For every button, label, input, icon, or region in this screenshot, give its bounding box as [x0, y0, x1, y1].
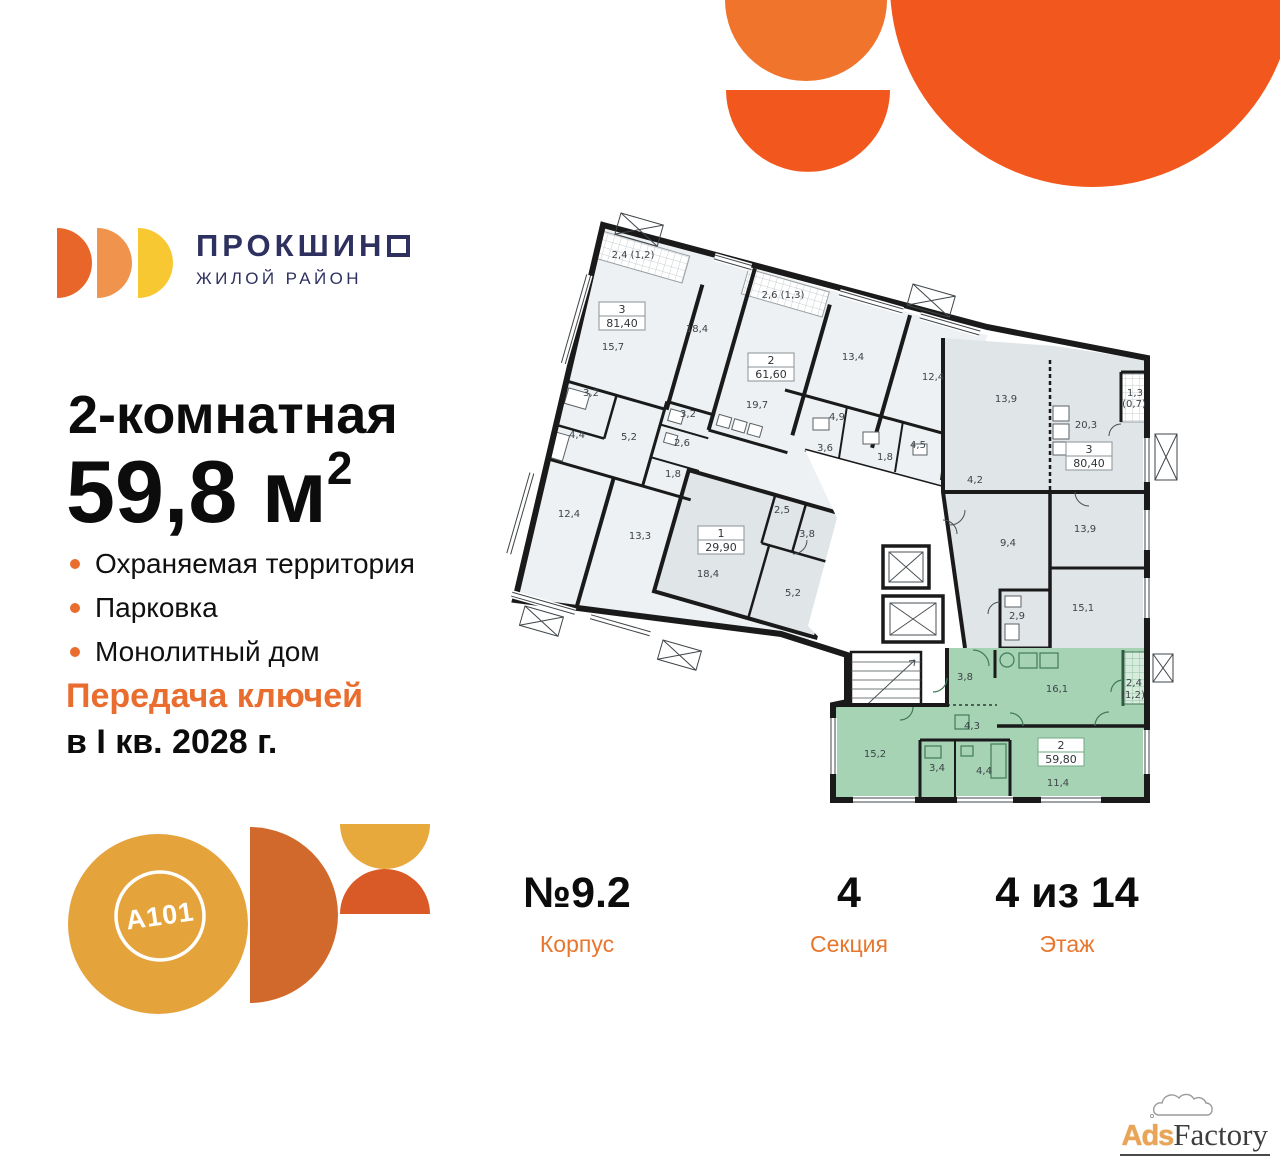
decor-circle-large: [890, 0, 1280, 187]
room-area-label: 15,2: [864, 749, 886, 760]
apartment-total-area: 81,40: [606, 317, 638, 330]
room-area-label: 3,6: [817, 443, 833, 454]
apartment-box: 261,60: [748, 353, 794, 381]
room-area-label: 13,9: [1074, 524, 1096, 535]
apartment-total-area: 59,80: [1045, 753, 1077, 766]
handover-line2: в I кв. 2028 г.: [66, 720, 363, 766]
room-area-label: 3,2: [583, 388, 599, 399]
feature-item: Охраняемая территория: [70, 548, 415, 580]
rooms-headline: 2-комнатная: [68, 384, 398, 446]
room-area-label: 2,5: [774, 505, 790, 516]
ad-card: ПРОКШИНО ЖИЛОЙ РАЙОН 2-комнатная 59,8 м2…: [0, 0, 1280, 1160]
room-area-label: 1,3: [1127, 388, 1143, 399]
apartment-box: 380,40: [1066, 442, 1112, 470]
floor-label: Этаж: [995, 931, 1138, 958]
building-number-label: Корпус: [523, 931, 631, 958]
room-area-label: 2,4: [1126, 678, 1142, 689]
building-number-block: №9.2 Корпус: [523, 872, 631, 958]
room-area-label: (1,2): [1121, 690, 1145, 701]
room-area-label: 16,1: [1046, 684, 1068, 695]
developer-halfdisc: [250, 827, 338, 1003]
bullet-dot-icon: [70, 603, 80, 613]
area-sup: 2: [327, 442, 353, 494]
room-area-label: 3,8: [957, 672, 973, 683]
section-number: 4: [810, 872, 888, 915]
watermark: AdsFactory: [1086, 1098, 1276, 1158]
watermark-factory: Factory: [1173, 1117, 1268, 1152]
room-area-label: 13,3: [629, 531, 651, 542]
room-area-label: 3,4: [929, 763, 945, 774]
feature-item: Монолитный дом: [70, 636, 415, 668]
room-area-label: (0,7): [1122, 399, 1146, 410]
room-area-label: 2,4 (1,2): [612, 250, 655, 261]
floor-number: 4 из 14: [995, 872, 1138, 915]
room-area-label: 13,9: [995, 394, 1017, 405]
developer-logo: A101: [60, 818, 440, 1018]
section-label: Секция: [810, 931, 888, 958]
developer-semicircle-orange: [340, 869, 430, 914]
brand-logo-discs: [57, 227, 182, 299]
room-area-label: 9,4: [1000, 538, 1016, 549]
room-area-label: 4,4: [569, 430, 585, 441]
apartment-rooms-count: 2: [768, 354, 775, 367]
room-area-label: 12,4: [558, 509, 580, 520]
brand-logo: ПРОКШИНО ЖИЛОЙ РАЙОН: [57, 226, 457, 301]
watermark-cloud-icon: [1146, 1082, 1224, 1118]
developer-semicircle-yellow: [340, 824, 430, 869]
room-area-label: 19,7: [746, 400, 768, 411]
room-area-label: 4,2: [967, 475, 983, 486]
apartment-box-selected: 259,80: [1038, 738, 1084, 766]
room-area-label: 1,8: [877, 452, 893, 463]
section-block: 4 Секция: [810, 872, 888, 958]
room-area-label: 15,1: [1072, 603, 1094, 614]
handover-line1: Передача ключей: [66, 674, 363, 720]
apartment-rooms-count: 3: [619, 303, 626, 316]
room-area-label: 4,9: [829, 412, 845, 423]
apartment-rooms-count: 3: [1086, 443, 1093, 456]
room-area-label: 3,8: [799, 529, 815, 540]
room-area-label: 1,8: [665, 469, 681, 480]
feature-label: Монолитный дом: [95, 636, 320, 668]
apartment-rooms-count: 1: [718, 527, 725, 540]
apartment-total-area: 29,90: [705, 541, 737, 554]
room-area-label: 2,6: [674, 438, 690, 449]
bullet-dot-icon: [70, 559, 80, 569]
room-area-label: 4,4: [976, 766, 992, 777]
floor-plan: 2,4 (1,2)15,718,42,6 (1,3)19,713,412,43,…: [495, 210, 1185, 810]
brand-disc-2: [97, 228, 132, 298]
apartment-box: 381,40: [599, 302, 645, 330]
brand-disc-1: [57, 228, 92, 298]
room-area-label: 12,4: [922, 372, 944, 383]
brand-disc-3: [138, 228, 173, 298]
apartment-total-area: 80,40: [1073, 457, 1105, 470]
decor-circles-top: [0, 0, 1280, 240]
room-area-label: 11,4: [1047, 778, 1069, 789]
bullet-dot-icon: [70, 647, 80, 657]
apartment-rooms-count: 2: [1058, 739, 1065, 752]
handover-block: Передача ключей в I кв. 2028 г.: [66, 674, 363, 766]
apartment-total-area: 61,60: [755, 368, 787, 381]
brand-name: ПРОКШИНО: [196, 230, 410, 261]
watermark-text: AdsFactory: [1120, 1117, 1271, 1156]
room-area-label: 20,3: [1075, 420, 1097, 431]
room-area-label: 3,2: [680, 409, 696, 420]
room-area-label: 2,9: [1009, 611, 1025, 622]
building-number: №9.2: [523, 872, 631, 915]
room-area-label: 15,7: [602, 342, 624, 353]
floor-block: 4 из 14 Этаж: [995, 872, 1138, 958]
feature-item: Парковка: [70, 592, 415, 624]
decor-semicircle-small-top: [725, 0, 887, 81]
room-area-label: 5,2: [785, 588, 801, 599]
room-area-label: 4,5: [910, 440, 926, 451]
feature-list: Охраняемая территория Парковка Монолитны…: [70, 548, 415, 680]
feature-label: Парковка: [95, 592, 218, 624]
brand-tagline: ЖИЛОЙ РАЙОН: [196, 269, 410, 289]
room-area-label: 18,4: [697, 569, 719, 580]
room-area-label: 18,4: [686, 324, 708, 335]
area-headline: 59,8 м2: [66, 444, 352, 538]
feature-label: Охраняемая территория: [95, 548, 415, 580]
area-value: 59,8: [66, 442, 237, 541]
plan-interior: [498, 225, 1147, 800]
room-area-label: 2,6 (1,3): [762, 290, 805, 301]
watermark-ads: Ads: [1122, 1120, 1174, 1152]
apartment-box: 129,90: [698, 526, 744, 554]
room-area-label: 13,4: [842, 352, 864, 363]
room-area-label: 4,3: [964, 721, 980, 732]
area-unit: м: [237, 442, 327, 541]
decor-semicircle-small-bottom: [726, 90, 890, 172]
room-area-label: 5,2: [621, 432, 637, 443]
